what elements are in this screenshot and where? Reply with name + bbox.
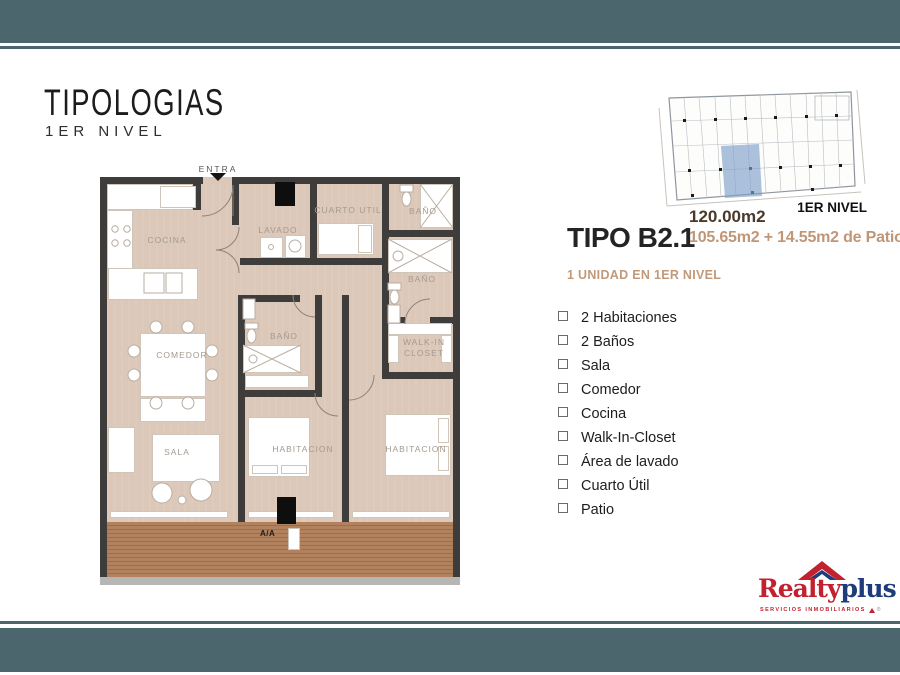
feature-label: Sala: [581, 358, 610, 374]
feature-item: Patio: [558, 502, 679, 517]
top-rule: [0, 46, 900, 49]
unit-availability: 1 UNIDAD EN 1ER NIVEL: [567, 268, 721, 282]
feature-label: Área de lavado: [581, 454, 679, 470]
checkbox-icon: [558, 455, 568, 465]
feature-item: 2 Baños: [558, 334, 679, 349]
triangle-icon: [869, 608, 875, 613]
feature-item: Cocina: [558, 406, 679, 421]
feature-label: Patio: [581, 502, 614, 518]
room-label-bano-2: BAÑO: [394, 274, 450, 285]
room-label-bano-1: BAÑO: [395, 206, 451, 217]
page-subtitle: 1ER NIVEL: [45, 123, 167, 140]
room-label-walkin: WALK-IN CLOSET: [396, 337, 452, 359]
logo-tagline-row: SERVICIOS INMOBILIARIOS ®: [760, 607, 880, 613]
unit-total-area: 120.00m2: [689, 207, 766, 227]
room-label-cocina: COCINA: [132, 235, 202, 246]
site-plan-thumbnail: 1ER NIVEL: [655, 88, 867, 220]
checkbox-icon: [558, 431, 568, 441]
registered-mark: ®: [877, 607, 881, 613]
checkbox-icon: [558, 359, 568, 369]
site-plan-caption: 1ER NIVEL: [797, 200, 867, 215]
feature-label: Comedor: [581, 382, 641, 398]
logo-word-plus: plus: [840, 574, 895, 603]
feature-item: Comedor: [558, 382, 679, 397]
feature-list: 2 Habitaciones 2 Baños Sala Comedor Coci…: [558, 310, 679, 526]
checkbox-icon: [558, 407, 568, 417]
bottom-band: [0, 628, 900, 672]
checkbox-icon: [558, 503, 568, 513]
checkbox-icon: [558, 335, 568, 345]
feature-item: Walk-In-Closet: [558, 430, 679, 445]
feature-label: 2 Habitaciones: [581, 310, 677, 326]
room-label-bano-3: BAÑO: [260, 331, 308, 342]
logo-word-realty: Realty: [758, 574, 840, 603]
feature-item: Cuarto Útil: [558, 478, 679, 493]
feature-label: 2 Baños: [581, 334, 634, 350]
logo-wordmark: Realtyplus: [758, 574, 896, 603]
ac-label: A/A: [260, 529, 300, 538]
highlighted-unit: [721, 144, 762, 198]
room-label-habitacion-2: HABITACION: [381, 444, 451, 455]
checkbox-icon: [558, 311, 568, 321]
feature-item: Sala: [558, 358, 679, 373]
room-label-habitacion-1: HABITACION: [268, 444, 338, 455]
feature-label: Walk-In-Closet: [581, 430, 676, 446]
logo-tagline: SERVICIOS INMOBILIARIOS: [760, 607, 866, 613]
page: TIPOLOGIAS 1ER NIVEL: [0, 0, 900, 675]
top-band: [0, 0, 900, 43]
feature-label: Cocina: [581, 406, 626, 422]
feature-label: Cuarto Útil: [581, 478, 650, 494]
unit-area-detail: 105.65m2 + 14.55m2 de Patio: [689, 229, 900, 247]
site-plan-drawing: [655, 88, 867, 208]
checkbox-icon: [558, 479, 568, 489]
entry-arrow-icon: [210, 173, 226, 181]
room-label-comedor: COMEDOR: [147, 350, 217, 361]
feature-item: Área de lavado: [558, 454, 679, 469]
room-label-sala: SALA: [142, 447, 212, 458]
page-title: TIPOLOGIAS: [44, 82, 225, 124]
feature-item: 2 Habitaciones: [558, 310, 679, 325]
checkbox-icon: [558, 383, 568, 393]
room-label-cuarto-util: CUARTO UTIL: [313, 205, 383, 216]
floor-plan: ENTRA COCINA LAVADO CUARTO UTIL BAÑO BAÑ…: [100, 177, 460, 587]
realtyplus-logo: Realtyplus SERVICIOS INMOBILIARIOS ®: [750, 560, 895, 624]
unit-name: TIPO B2.1: [567, 222, 695, 254]
room-label-lavado: LAVADO: [243, 225, 313, 236]
